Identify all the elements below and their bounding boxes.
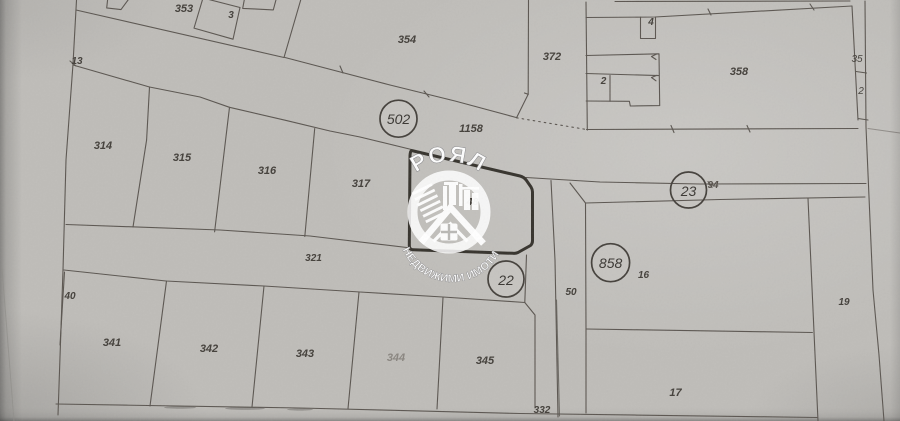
svg-text:345: 345 — [476, 355, 495, 367]
svg-text:344: 344 — [387, 352, 405, 364]
svg-text:316: 316 — [258, 165, 277, 177]
svg-text:858: 858 — [599, 255, 623, 271]
svg-text:317: 317 — [352, 178, 371, 190]
svg-text:358: 358 — [730, 66, 749, 78]
svg-text:19: 19 — [838, 297, 850, 308]
svg-text:16: 16 — [638, 270, 650, 281]
svg-text:342: 342 — [200, 343, 218, 355]
svg-text:372: 372 — [543, 51, 561, 63]
svg-text:40: 40 — [63, 291, 76, 302]
svg-text:2: 2 — [857, 86, 864, 97]
svg-text:341: 341 — [103, 337, 121, 349]
svg-text:22: 22 — [497, 272, 514, 288]
svg-text:354: 354 — [398, 34, 416, 46]
svg-text:23: 23 — [680, 183, 697, 199]
svg-text:502: 502 — [387, 111, 411, 127]
svg-text:50: 50 — [565, 287, 577, 298]
svg-text:332: 332 — [534, 405, 551, 416]
svg-text:314: 314 — [94, 140, 112, 152]
svg-text:343: 343 — [296, 348, 314, 360]
svg-text:4: 4 — [647, 17, 654, 28]
svg-text:3: 3 — [228, 10, 234, 21]
svg-text:94: 94 — [707, 180, 719, 191]
svg-text:13: 13 — [71, 56, 83, 67]
svg-text:35: 35 — [851, 54, 863, 65]
svg-text:1158: 1158 — [459, 123, 484, 135]
svg-text:321: 321 — [305, 253, 322, 264]
svg-text:353: 353 — [175, 3, 193, 15]
svg-text:17: 17 — [669, 387, 682, 399]
svg-text:315: 315 — [173, 152, 192, 164]
svg-text:2: 2 — [600, 76, 607, 87]
